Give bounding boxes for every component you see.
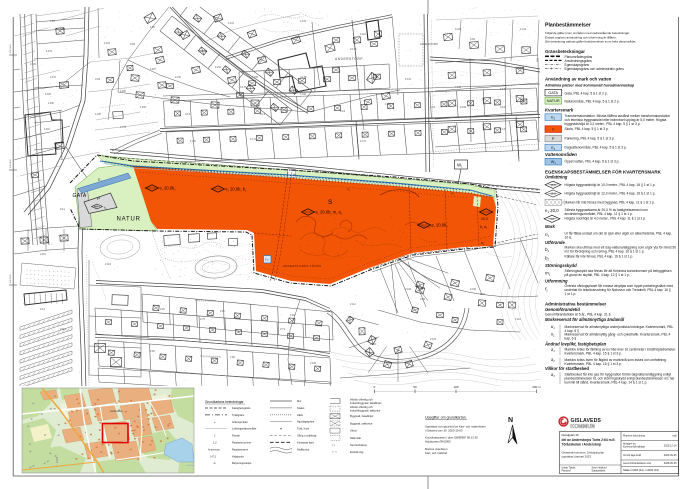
svg-text:GATA: GATA	[73, 193, 87, 199]
svg-text:Allmänna platser med kommunalt: Allmänna platser med kommunalt huvudmann…	[544, 83, 635, 87]
svg-text:2:110: 2:110	[515, 318, 521, 321]
svg-text:byggnadshöjd är 3,2 meter., PB: byggnadshöjd är 3,2 meter., PBL 4 kap. 5…	[565, 122, 641, 126]
svg-text:ANDERSTORPS TÖRÅS: ANDERSTORPS TÖRÅS	[283, 263, 321, 268]
svg-text:100: 100	[453, 385, 458, 389]
svg-text:i Gislaved tom 30 2023-10-03: i Gislaved tom 30 2023-10-03	[425, 428, 463, 432]
svg-text:Mur: Mur	[297, 399, 302, 403]
svg-text:1 st 1 p.: 1 st 1 p.	[565, 292, 577, 296]
svg-text:Byggnad, takkontur: Byggnad, takkontur	[350, 421, 372, 425]
svg-text:200 m: 200 m	[532, 385, 541, 389]
svg-text:Genomförandetid: Genomförandetid	[545, 307, 580, 312]
svg-text:Skärmtak: Skärmtak	[350, 436, 362, 440]
svg-text:2:114: 2:114	[60, 328, 66, 331]
svg-text:147,3: 147,3	[210, 455, 217, 458]
svg-text:4:174: 4:174	[250, 138, 257, 141]
svg-text:4:14: 4:14	[340, 109, 346, 113]
svg-text:S: S	[552, 128, 555, 132]
svg-text:Töråsskolan i Anderstorp: Töråsskolan i Anderstorp	[562, 443, 602, 447]
svg-text:m2 för fördröjning och rening,: m2 för fördröjning och rening, PBL 4 kap…	[565, 250, 645, 254]
svg-text:Allmän offentlig och: Allmän offentlig och	[350, 405, 373, 409]
svg-text:2:104: 2:104	[430, 338, 437, 341]
svg-text:4:152: 4:152	[215, 66, 222, 69]
svg-text:Kart- och mätchef: Kart- och mätchef	[425, 451, 447, 455]
svg-text:Marken får inte förses med byg: Marken får inte förses med byggnad, PBL …	[565, 200, 655, 204]
svg-text:Höjdpunkt: Höjdpunkt	[232, 454, 244, 458]
svg-text:Gränsbeteckningar: Gränsbeteckningar	[545, 49, 585, 54]
svg-text:Störningsskydd: Störningsskydd	[545, 263, 577, 268]
svg-text:Markreservat för allmännyttiga: Markreservat för allmännyttiga underjord…	[565, 325, 674, 329]
svg-text:Parkering, PBL 4 kap. 5 § 1 st: Parkering, PBL 4 kap. 5 § 1 st 3 p.	[565, 137, 615, 141]
svg-text:4:60: 4:60	[470, 37, 476, 41]
svg-text:Gränspunkter: Gränspunkter	[232, 420, 248, 424]
svg-text:+: +	[214, 420, 216, 424]
svg-text:Användning av mark och vatten: Användning av mark och vatten	[545, 77, 612, 82]
svg-text:Rutnät: Rutnät	[232, 434, 240, 438]
svg-text:på grund av skyfall, PBL 4 kap: på grund av skyfall, PBL 4 kap. 12 § 1 s…	[565, 273, 630, 277]
svg-text:Öppet vatten, PBL 4 kap. 5 § 1: Öppet vatten, PBL 4 kap. 5 § 1 st 3 p.	[565, 160, 620, 164]
svg-text:4:278: 4:278	[46, 51, 52, 53]
svg-text:4:172: 4:172	[360, 140, 367, 143]
svg-text:del av Anderstorps Torfa 2:64: del av Anderstorps Torfa 2:64 m.fl.	[562, 438, 616, 442]
svg-text:4:178: 4:178	[120, 126, 127, 129]
svg-text:+: +	[551, 67, 553, 71]
svg-text:Y Y: Y Y	[332, 450, 337, 454]
svg-text:2:71: 2:71	[280, 327, 286, 331]
svg-text:2:106: 2:106	[405, 288, 412, 291]
svg-text:Källare får inte finnas, PBL 4: Källare får inte finnas, PBL 4 kap. 16 §…	[565, 254, 634, 258]
svg-text:Där beteckning saknas gäller b: Där beteckning saknas gäller bestämmelse…	[545, 39, 636, 43]
svg-text:) ): ) )	[332, 443, 335, 447]
svg-text:2:108: 2:108	[470, 288, 477, 291]
svg-text:2:11: 2:11	[60, 207, 65, 211]
svg-text:4:105: 4:105	[300, 20, 307, 23]
svg-text:4:279: 4:279	[50, 77, 56, 79]
svg-text:Omfattning: Omfattning	[545, 174, 568, 179]
svg-text:Skola, PBL 4 kap. 5 § 1 st 3 p: Skola, PBL 4 kap. 5 § 1 st 3 p.	[565, 127, 609, 131]
svg-text:Gata, PBL 4 kap. 5 § 1 st 2 p.: Gata, PBL 4 kap. 5 § 1 st 2 p.	[565, 91, 608, 95]
svg-text:Byggnad, fasadlinjer: Byggnad, fasadlinjer	[350, 414, 374, 418]
svg-text:Ur får fällas endast om det är: Ur får fällas endast om det är sjuk elle…	[565, 231, 673, 235]
svg-text:Lednings­rättsområde: Lednings­rättsområde	[232, 427, 257, 431]
svg-text:Ägoslagsgräns: Ägoslagsgräns	[297, 420, 315, 424]
svg-text:4:160: 4:160	[300, 93, 307, 96]
svg-text:ANDERSTORP: ANDERSTORP	[420, 42, 438, 46]
svg-text:2:94: 2:94	[290, 314, 295, 317]
svg-text:S: S	[328, 199, 333, 206]
svg-text:4:92: 4:92	[95, 77, 101, 81]
svg-text:P: P	[97, 196, 100, 201]
svg-text:KOMMUN: KOMMUN	[571, 424, 596, 430]
svg-text:Kommunfullmäktige: Kommunfullmäktige	[623, 446, 646, 449]
svg-text:Kvartersmark, PBL 4 kap. 15 §: Kvartersmark, PBL 4 kap. 15 § 1 st 3 p.	[565, 352, 623, 356]
svg-text:Planens beteckning: Planens beteckning	[623, 435, 645, 438]
svg-text:Kvartersmark: Kvartersmark	[545, 107, 574, 112]
svg-text:2:80: 2:80	[420, 297, 426, 301]
svg-text:ANDERSTORP: ANDERSTORP	[335, 57, 363, 61]
svg-text:Ändrad lovplikt, fastighetspla: Ändrad lovplikt, fastighetsplan	[544, 341, 607, 346]
svg-text:Staket: Staket	[297, 406, 305, 410]
svg-text:4:12: 4:12	[185, 112, 191, 116]
svg-text:e1 20,0b1 b2: e1 20,0b1 b2	[226, 187, 248, 193]
svg-text:2023-05-25: 2023-05-25	[664, 454, 677, 457]
svg-text:mdf: mdf	[672, 435, 676, 438]
svg-text:4:131: 4:131	[405, 78, 412, 81]
svg-text:2:92: 2:92	[220, 310, 225, 313]
svg-text:Dagvattenområde, PBL 4 kap. 5: Dagvattenområde, PBL 4 kap. 5 § 1 st 3 p…	[565, 146, 627, 150]
svg-text:Utförande: Utförande	[545, 240, 565, 245]
svg-text:20,0: 20,0	[481, 217, 488, 221]
svg-text:4:110: 4:110	[360, 33, 366, 36]
svg-text:2:118: 2:118	[105, 263, 111, 266]
svg-text:NATUR: NATUR	[117, 217, 141, 223]
svg-text:Uthus: Uthus	[350, 429, 357, 433]
svg-text:4:124: 4:124	[520, 28, 527, 31]
svg-text:4:101: 4:101	[228, 22, 235, 25]
svg-text:4:95: 4:95	[130, 42, 136, 46]
svg-text:2:70: 2:70	[200, 317, 206, 321]
svg-text:4:184: 4:184	[30, 63, 37, 66]
svg-text:Planbestämmelser: Planbestämmelser	[545, 23, 591, 29]
svg-text:12,0: 12,0	[550, 192, 556, 196]
svg-text:2023-12-14: 2023-12-14	[664, 445, 677, 448]
svg-text:Enskild väg: Enskild väg	[350, 450, 364, 454]
svg-text:Genomförandetiden är 5 år., PB: Genomförandetiden är 5 år., PBL 4 kap. 2…	[545, 313, 611, 317]
svg-text:Uppgifter om grundkartan: Uppgifter om grundkartan	[425, 416, 466, 420]
svg-text:4:180: 4:180	[95, 113, 102, 116]
svg-text:4:166: 4:166	[460, 106, 467, 109]
svg-text:Högsta byggnadshöjd är 10,0 me: Högsta byggnadshöjd är 10,0 meter., PBL …	[565, 183, 656, 187]
svg-text:4:170: 4:170	[500, 128, 507, 131]
svg-text:upprättad i januari 2023: upprättad i januari 2023	[562, 454, 592, 458]
svg-text:industribyggnad, takkontur: industribyggnad, takkontur	[350, 409, 381, 413]
svg-text:4:150: 4:150	[175, 76, 182, 79]
svg-text:Vattenområden: Vattenområden	[545, 152, 577, 157]
svg-text:6357400: 6357400	[10, 159, 12, 168]
svg-text:Träd, Kant: Träd, Kant	[297, 427, 309, 431]
svg-text:Belysningsstolpe: Belysningsstolpe	[232, 461, 252, 465]
svg-text:4:16: 4:16	[500, 105, 506, 109]
svg-text:Gång o cykelväg: Gång o cykelväg	[297, 434, 317, 438]
svg-text:Fastighetsgräns: Fastighetsgräns	[232, 406, 251, 410]
svg-text:undertak för teknikutrustning: undertak för teknikutrustning för Naturv…	[565, 288, 671, 292]
svg-text:Markreservat för allmännyttiga: Markreservat för allmännyttiga ändamål	[545, 317, 625, 322]
svg-text:Detaljplan för: Detaljplan för	[562, 433, 580, 437]
svg-text:10 §.: 10 §.	[565, 235, 572, 239]
svg-text:Fv: Fv	[265, 258, 269, 262]
svg-text:Vunnit laga kraft: Vunnit laga kraft	[623, 454, 641, 457]
svg-text:Högsta byggnadshöjd är 12,0 me: Högsta byggnadshöjd är 12,0 meter., PBL …	[565, 192, 656, 196]
svg-text:4,0: 4,0	[550, 217, 554, 221]
svg-text:P: P	[552, 137, 555, 141]
svg-text:e1 20,0b1: e1 20,0b1	[160, 186, 177, 192]
svg-text:NATUR: NATUR	[547, 99, 560, 103]
svg-text:Egenskapsgräns och administrat: Egenskapsgräns och administrativ gräns	[565, 67, 625, 71]
svg-text:6357400: 6357400	[10, 44, 12, 53]
svg-text:Körbanas kant: Körbanas kant	[297, 440, 314, 444]
svg-text:kap. 6 §: kap. 6 §	[565, 337, 577, 341]
svg-text:e1 20,0b2 m1 a3: e1 20,0b2 m1 a3	[316, 210, 343, 216]
svg-text:2:96: 2:96	[150, 350, 155, 353]
svg-text:Nivåkurvor: Nivåkurvor	[297, 447, 310, 451]
svg-text:4:155: 4:155	[252, 76, 259, 79]
svg-text:4:280: 4:280	[48, 103, 54, 105]
svg-text:4:120: 4:120	[455, 28, 462, 31]
svg-text:Servitut/trätorp: Servitut/trätorp	[350, 443, 368, 447]
svg-text:2:100: 2:100	[310, 362, 317, 365]
svg-text:Allmän offentlig och: Allmän offentlig och	[350, 398, 373, 402]
svg-text:Genomförandetidens slut: Genomförandetidens slut	[623, 462, 651, 465]
svg-text:e1 20,0b1: e1 20,0b1	[432, 223, 449, 229]
svg-text:Utformning: Utformning	[545, 279, 568, 284]
svg-text:Markreservat för allmännyttig: Markreservat för allmännyttig gång- och …	[565, 333, 671, 337]
svg-text:1:2: 1:2	[213, 441, 217, 445]
svg-text:4:289: 4:289	[140, 107, 146, 109]
svg-text:4:96: 4:96	[150, 26, 155, 29]
svg-text:kommit till stånd. Kvartersmar: kommit till stånd. Kvartersmark, PBL 4 k…	[565, 381, 648, 385]
svg-text:Stadsarkitekt: Stadsarkitekt	[592, 470, 606, 473]
svg-text:industribyggnad, fasadlinjer: industribyggnad, fasadlinjer	[350, 401, 382, 405]
svg-text:6357400: 6357400	[10, 274, 12, 283]
svg-text:Mark: Mark	[545, 224, 555, 229]
svg-text:Skala 1:2000 (A1), 1:2000 (A3): Skala 1:2000 (A1), 1:2000 (A3)	[623, 468, 659, 472]
svg-text:Registernamn: Registernamn	[232, 447, 249, 451]
svg-text:GATA: GATA	[548, 91, 558, 95]
svg-text:-¤-: -¤-	[213, 461, 216, 465]
svg-text:Villkor för startbesked: Villkor för startbesked	[545, 366, 590, 371]
svg-text:Traktgräns: Traktgräns	[232, 413, 245, 417]
svg-text:Registernummer: Registernummer	[232, 441, 251, 445]
svg-text:N: N	[508, 417, 513, 424]
svg-text:2:116: 2:116	[40, 253, 46, 256]
svg-text:10,0: 10,0	[550, 183, 556, 187]
svg-text:4:182: 4:182	[45, 93, 52, 96]
svg-text:50: 50	[413, 385, 417, 389]
svg-text:Högsta nockhöjd är 4,0 meter.,: Högsta nockhöjd är 4,0 meter., PBL 4 kap…	[565, 216, 647, 220]
svg-text:Grundkartans beteckningar: Grundkartans beteckningar	[205, 400, 244, 404]
svg-text:4:281: 4:281	[44, 129, 50, 131]
svg-text:2:12: 2:12	[40, 307, 46, 311]
svg-text:4:174: 4:174	[350, 47, 357, 51]
svg-text:Höjdsystem RH2000: Höjdsystem RH2000	[425, 439, 451, 443]
svg-text:4:283: 4:283	[104, 43, 110, 45]
svg-text:Administrativa bestämmelser: Administrativa bestämmelser	[545, 302, 607, 307]
svg-text:2:90: 2:90	[160, 308, 165, 311]
svg-text:Häck: Häck	[297, 413, 304, 417]
svg-text:Anderstorp: Anderstorp	[110, 409, 123, 413]
svg-text:Planchef: Planchef	[562, 470, 572, 473]
svg-text:2028-05-25: 2028-05-25	[664, 462, 677, 465]
svg-text:Anderstorp: Anderstorp	[208, 448, 220, 451]
svg-text:2:112: 2:112	[350, 303, 356, 306]
svg-text:Naturområde, PBL 4 kap. 5 § 1: Naturområde, PBL 4 kap. 5 § 1 st 2 p.	[565, 100, 620, 104]
